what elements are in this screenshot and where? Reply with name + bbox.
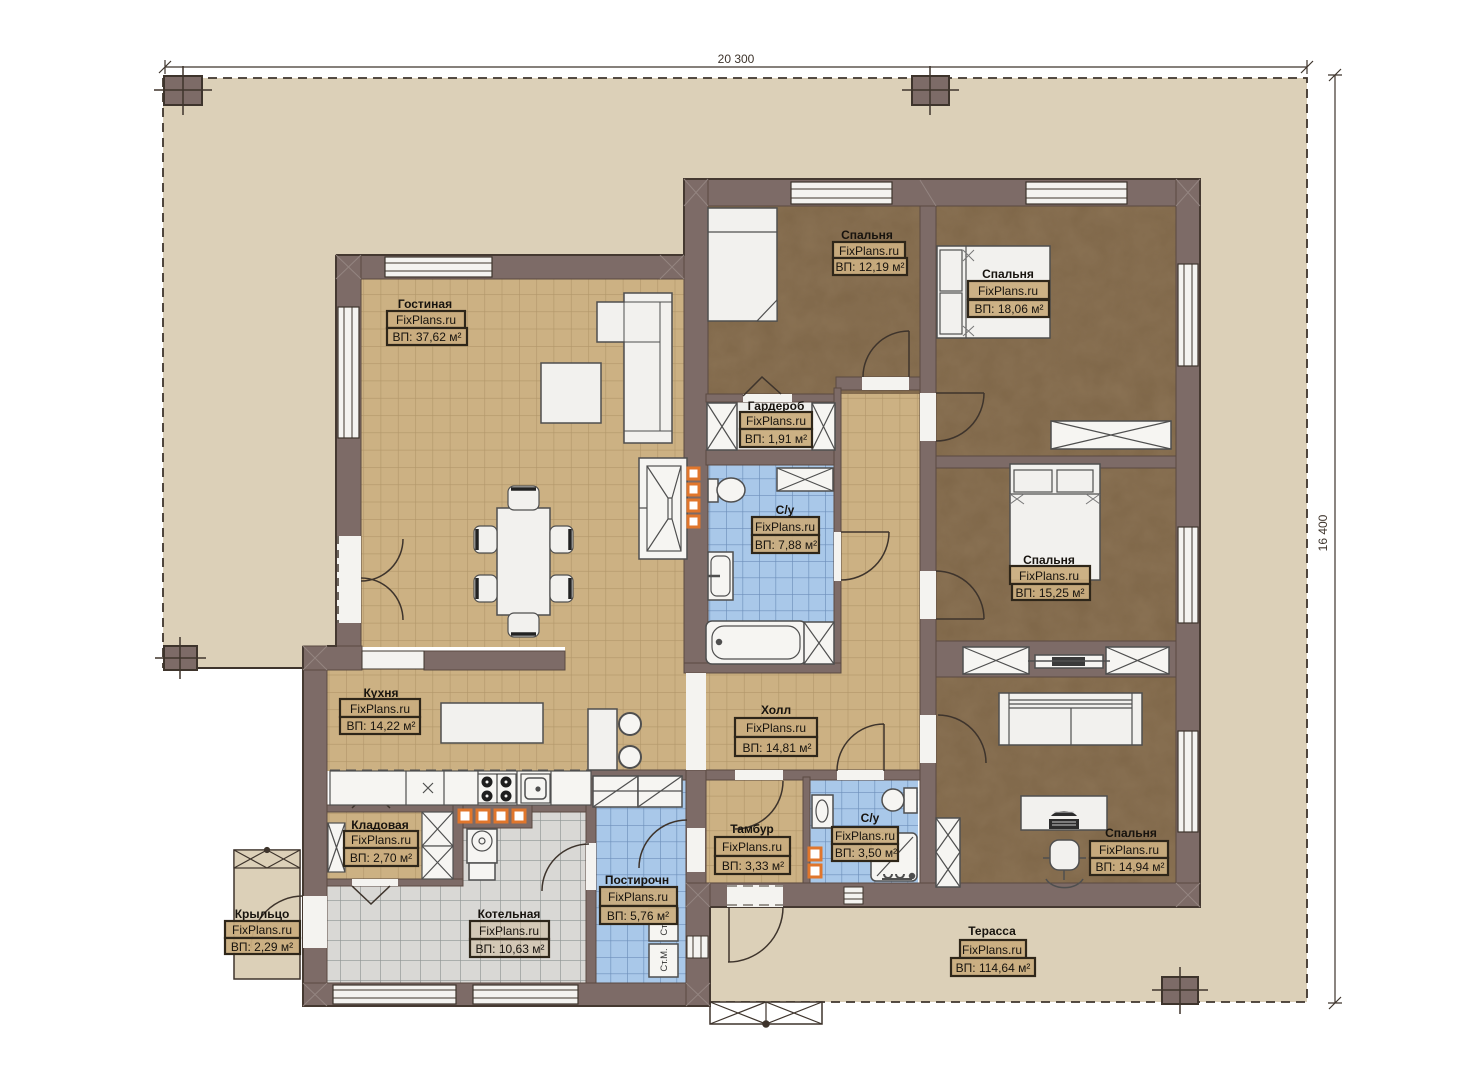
svg-text:16 400: 16 400 xyxy=(1316,514,1330,551)
svg-text:Спальня: Спальня xyxy=(982,267,1034,281)
svg-text:Тамбур: Тамбур xyxy=(730,822,774,836)
svg-text:ВП: 14,22 м²: ВП: 14,22 м² xyxy=(347,719,416,733)
svg-text:Постирочн: Постирочн xyxy=(605,873,669,887)
svg-text:ВП: 2,70 м²: ВП: 2,70 м² xyxy=(350,851,412,865)
svg-text:FixPlans.ru: FixPlans.ru xyxy=(722,840,782,854)
svg-text:FixPlans.ru: FixPlans.ru xyxy=(746,414,806,428)
svg-text:FixPlans.ru: FixPlans.ru xyxy=(350,702,410,716)
svg-text:Спальня: Спальня xyxy=(1105,826,1157,840)
svg-text:Котельная: Котельная xyxy=(478,907,541,921)
svg-text:FixPlans.ru: FixPlans.ru xyxy=(978,284,1038,298)
svg-text:Холл: Холл xyxy=(761,703,791,717)
svg-text:20 300: 20 300 xyxy=(718,52,755,66)
svg-text:FixPlans.ru: FixPlans.ru xyxy=(396,313,456,327)
svg-text:FixPlans.ru: FixPlans.ru xyxy=(1019,569,1079,583)
svg-text:ВП: 2,29 м²: ВП: 2,29 м² xyxy=(231,940,293,954)
svg-text:FixPlans.ru: FixPlans.ru xyxy=(962,943,1022,957)
svg-text:Ст.М.: Ст.М. xyxy=(659,948,670,971)
svg-text:ВП: 10,63 м²: ВП: 10,63 м² xyxy=(476,942,545,956)
svg-text:FixPlans.ru: FixPlans.ru xyxy=(835,829,895,843)
svg-text:Спальня: Спальня xyxy=(841,228,893,242)
svg-text:FixPlans.ru: FixPlans.ru xyxy=(232,923,292,937)
svg-text:ВП: 1,91 м²: ВП: 1,91 м² xyxy=(745,432,807,446)
svg-text:FixPlans.ru: FixPlans.ru xyxy=(746,721,806,735)
svg-text:Гостиная: Гостиная xyxy=(398,297,452,311)
svg-text:ВП: 18,06 м²: ВП: 18,06 м² xyxy=(975,302,1044,316)
svg-text:FixPlans.ru: FixPlans.ru xyxy=(479,924,539,938)
svg-text:ВП: 114,64 м²: ВП: 114,64 м² xyxy=(956,961,1031,975)
svg-text:ВП: 14,81 м²: ВП: 14,81 м² xyxy=(743,741,812,755)
svg-text:FixPlans.ru: FixPlans.ru xyxy=(755,520,815,534)
svg-text:ВП: 7,88 м²: ВП: 7,88 м² xyxy=(755,538,817,552)
svg-text:FixPlans.ru: FixPlans.ru xyxy=(608,890,668,904)
svg-text:Гардероб: Гардероб xyxy=(748,399,805,413)
svg-text:FixPlans.ru: FixPlans.ru xyxy=(1099,843,1159,857)
svg-text:Крыльцо: Крыльцо xyxy=(235,907,290,921)
svg-text:FixPlans.ru: FixPlans.ru xyxy=(839,244,899,258)
svg-text:FixPlans.ru: FixPlans.ru xyxy=(351,833,411,847)
svg-text:Терасса: Терасса xyxy=(968,924,1016,938)
svg-text:ВП: 3,33 м²: ВП: 3,33 м² xyxy=(722,859,784,873)
svg-text:ВП: 14,94 м²: ВП: 14,94 м² xyxy=(1096,860,1165,874)
svg-text:С/у: С/у xyxy=(776,503,795,517)
svg-text:ВП: 5,76 м²: ВП: 5,76 м² xyxy=(607,909,669,923)
svg-text:ВП: 15,25 м²: ВП: 15,25 м² xyxy=(1016,586,1085,600)
svg-text:ВП: 3,50 м²: ВП: 3,50 м² xyxy=(835,846,897,860)
svg-text:С/у: С/у xyxy=(861,811,880,825)
svg-text:ВП: 12,19 м²: ВП: 12,19 м² xyxy=(836,260,905,274)
svg-text:ВП: 37,62 м²: ВП: 37,62 м² xyxy=(393,330,462,344)
